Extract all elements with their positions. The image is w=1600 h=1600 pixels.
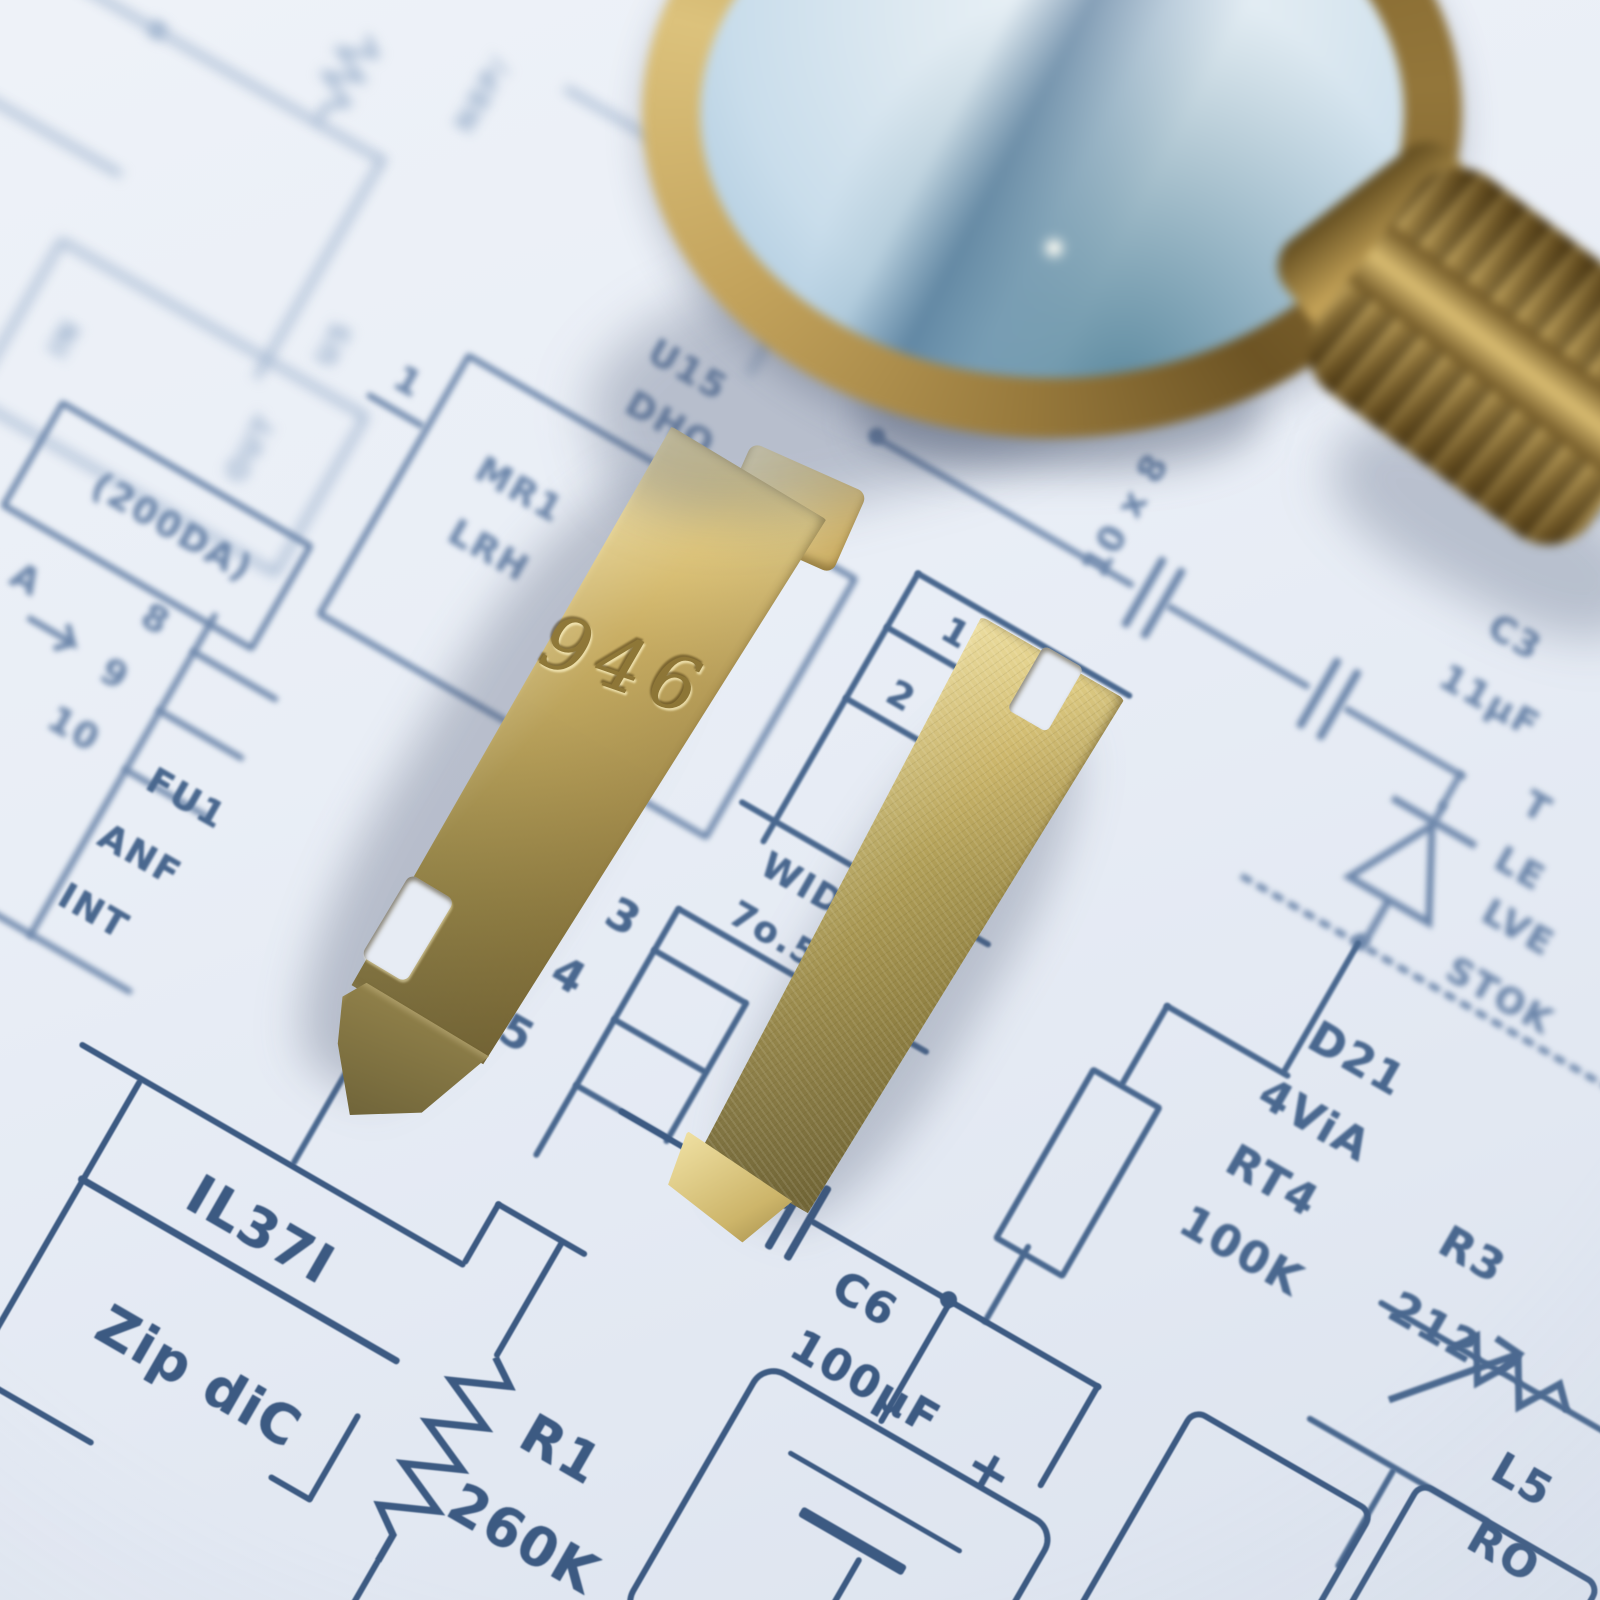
pin-number: 9: [93, 650, 137, 699]
pin-number: 2: [879, 672, 923, 721]
schematic-line: [1163, 1002, 1292, 1080]
schematic-line: [1165, 603, 1311, 691]
label-c3: C3: [1481, 606, 1550, 669]
schematic-line: [306, 1558, 381, 1600]
pin-number: 1: [386, 358, 430, 407]
label-l5: L5: [1483, 1443, 1563, 1518]
label-a: A: [3, 555, 49, 605]
label-le: LE: [1487, 839, 1552, 900]
bracket-line: [267, 1473, 313, 1503]
schematic-line: [563, 85, 826, 240]
label-t: T: [1515, 783, 1559, 832]
bracket-line: [306, 1412, 361, 1502]
pin-number: 10: [40, 698, 107, 761]
resistor-box: [992, 1066, 1163, 1280]
schematic-line: [493, 1239, 566, 1359]
schematic-line: [494, 1200, 588, 1258]
label-u5: U5: [308, 315, 360, 372]
schematic-line: [1343, 705, 1467, 780]
schematic-line: [981, 1243, 1032, 1326]
capacitor-plate: [1121, 556, 1168, 629]
label-r1: R1: [509, 1402, 613, 1498]
pin-stub: [610, 1015, 708, 1075]
schematic-line: [0, 22, 123, 177]
schematic-line: [1037, 1382, 1102, 1489]
schematic-line: [1469, 435, 1600, 600]
pin-stub: [190, 648, 280, 703]
pin-stub: [156, 707, 246, 762]
label-int: INT: [51, 875, 136, 948]
capacitor-plate: [1295, 657, 1342, 730]
label-zipdic: Zip diC: [86, 1293, 313, 1461]
label-n8p: N8P/: [447, 51, 516, 138]
label-r3: R3: [1430, 1216, 1515, 1294]
schematic-line: [1118, 1002, 1171, 1087]
label-fu1: FU1: [139, 760, 233, 838]
label-c3-value: 11µF: [1432, 657, 1547, 747]
schematic-line: [461, 1200, 502, 1265]
label-anf: ANF: [91, 815, 188, 895]
label-rt4: RT4: [1217, 1135, 1328, 1228]
arrow-symbol: [18, 600, 99, 670]
photo-scene: U5 IN OUT N8P/ (200DA) 8 9 10 A FU1 ANF …: [0, 0, 1600, 1600]
schematic-line: [746, 235, 831, 377]
resistor-symbol: [297, 25, 387, 135]
pin-stub: [650, 946, 748, 1006]
schematic-paper: U5 IN OUT N8P/ (200DA) 8 9 10 A FU1 ANF …: [0, 0, 1600, 1600]
schematic-line: [0, 1286, 95, 1446]
label-lve: LVE: [1475, 891, 1562, 965]
